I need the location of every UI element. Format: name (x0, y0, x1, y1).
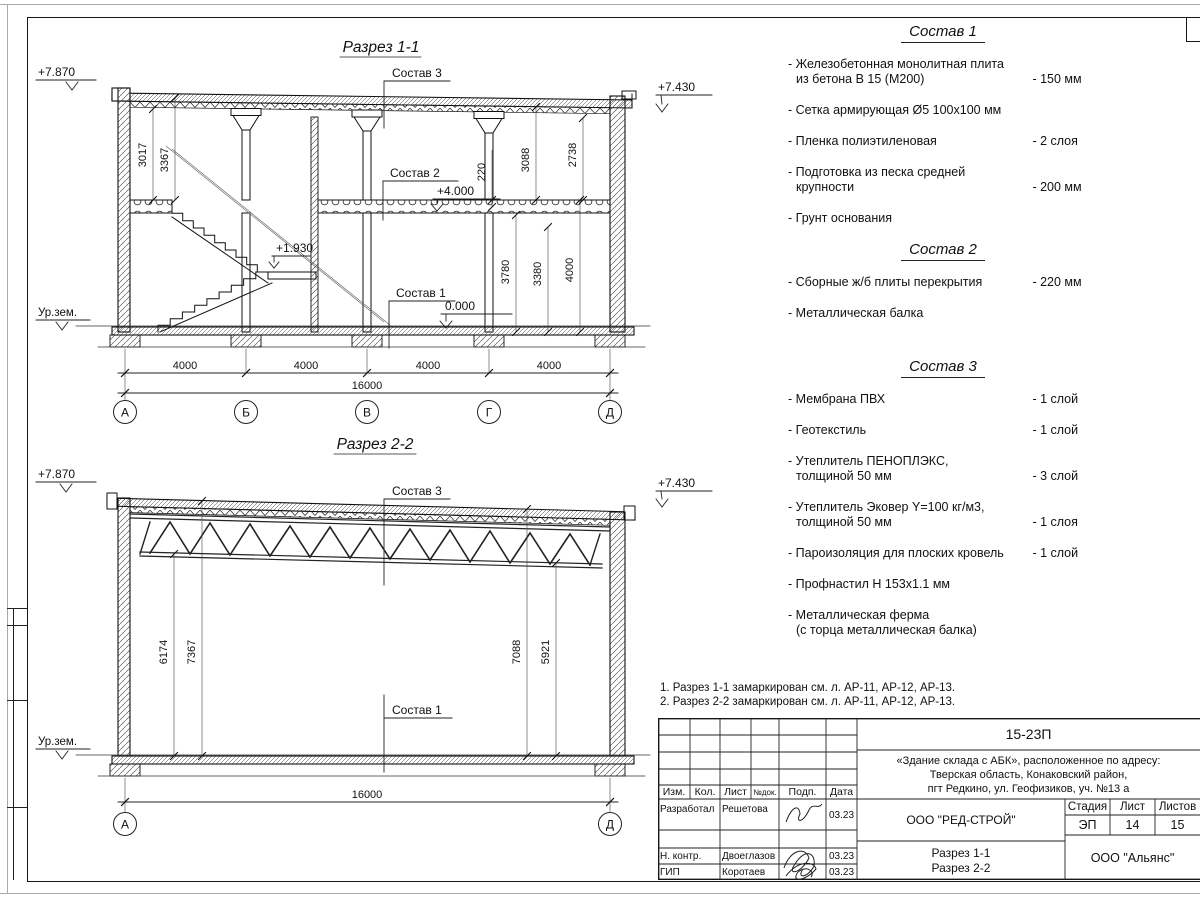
svg-text:7088: 7088 (511, 640, 523, 664)
lead-s3: Состав 3 (392, 66, 442, 80)
note-line: 2. Разрез 2-2 замаркирован см. л. АР-11,… (660, 695, 1090, 709)
drawing-sheet: { "sections": { "s1": { "title": "Разрез… (0, 0, 1200, 900)
tb-row-role: Н. контр. (660, 849, 720, 863)
tb-sheet-label: Лист (1110, 799, 1155, 815)
lead-s1: Состав 1 (396, 286, 446, 300)
material-item: - Мембрана ПВХ- 1 слой (788, 392, 1098, 407)
svg-text:+7.870: +7.870 (38, 467, 75, 481)
tb-col-ndok: №док. (751, 785, 779, 799)
material-item: - Железобетонная монолитная плита из бет… (788, 57, 1098, 87)
tb-row-role: ГИП (660, 865, 720, 879)
svg-text:5921: 5921 (540, 640, 552, 664)
svg-text:2738: 2738 (567, 143, 579, 167)
material-item: - Пароизоляция для плоских кровель- 1 сл… (788, 546, 1098, 561)
tb-row-name: Коротаев (722, 865, 778, 879)
svg-text:4000: 4000 (294, 360, 318, 372)
tb-col-podp: Подп. (779, 785, 826, 799)
sheet-edge-left (7, 4, 8, 893)
svg-text:Д: Д (606, 818, 614, 832)
tb-project: «Здание склада с АБК», расположенное по … (857, 750, 1200, 799)
svg-text:7367: 7367 (186, 640, 198, 664)
material-item: - Сетка армирующая Ø5 100х100 мм (788, 103, 1098, 118)
tb-row-name: Двоеглазов (722, 849, 778, 863)
sostav2-title: Состав 2 (788, 242, 1098, 257)
svg-text:4000: 4000 (173, 360, 197, 372)
tb-row-date: 03.23 (826, 808, 857, 822)
ground-label-s1: Ур.зем. (38, 307, 77, 319)
sections-drawing: Разрез 1-1 (25, 20, 740, 840)
tb-contractor: ООО "Альянс" (1065, 835, 1200, 880)
elev-4000: +4.000 (437, 184, 474, 198)
lead-s2: Состав 2 (390, 166, 440, 180)
bottom-dims-s1: 4000 4000 4000 4000 16000 (118, 349, 618, 400)
material-item: - Подготовка из песка средней крупности-… (788, 165, 1098, 195)
svg-text:3017: 3017 (137, 143, 149, 167)
tb-company: ООО "РЕД-СТРОЙ" (857, 799, 1065, 841)
tb-sheets-value: 15 (1155, 815, 1200, 835)
material-item: - Сборные ж/б плиты перекрытия- 220 мм (788, 275, 1098, 290)
corner-stamp-box (1186, 17, 1200, 42)
material-item: - Профнастил Н 153х1.1 мм (788, 577, 1098, 592)
material-item: - Утеплитель ПЕНОПЛЭКС, толщиной 50 мм- … (788, 454, 1098, 484)
ground-label-s2: Ур.зем. (38, 736, 77, 748)
staircase (158, 146, 390, 332)
tb-col-kol: Кол. (690, 785, 720, 799)
tb-row-date: 03.23 (826, 849, 857, 863)
tb-row-name: Решетова (722, 802, 778, 816)
svg-text:Г: Г (486, 406, 493, 420)
signature-icon (786, 863, 816, 879)
elev-7430: +7.430 (658, 80, 695, 94)
sostav1-title: Состав 1 (788, 24, 1098, 39)
svg-text:4000: 4000 (537, 360, 561, 372)
tb-col-list: Лист (720, 785, 751, 799)
sheet-edge-bottom (0, 893, 1200, 894)
svg-text:Б: Б (242, 406, 250, 420)
sheet-edge-top (0, 4, 1200, 5)
bottom-dims-s2: 16000 (118, 778, 618, 812)
section1-title: Разрез 1-1 (343, 39, 420, 56)
tb-stage-label: Стадия (1065, 799, 1110, 815)
svg-text:А: А (121, 818, 129, 832)
tb-row-role: Разработал (660, 802, 720, 816)
svg-text:4000: 4000 (564, 258, 576, 282)
material-item: - Грунт основания (788, 211, 1098, 226)
elev-7870: +7.870 (38, 65, 75, 79)
material-lists: Состав 1 - Железобетонная монолитная пли… (788, 24, 1098, 654)
leaders-s2: Состав 3 Состав 1 (384, 484, 452, 772)
section-2-2: Разрез 2-2 +7.870 +7 (36, 436, 712, 836)
foundation-pads-s2 (110, 764, 625, 776)
notes: 1. Разрез 1-1 замаркирован см. л. АР-11,… (660, 681, 1090, 709)
svg-text:4000: 4000 (416, 360, 440, 372)
title-block: 15-23П «Здание склада с АБК», расположен… (658, 718, 1200, 880)
vert-dims-s1: 3017 3367 220 3088 2738 3780 3380 4000 (137, 95, 587, 336)
material-item: - Геотекстиль- 1 слой (788, 423, 1098, 438)
signature-icon (786, 804, 822, 822)
svg-text:В: В (363, 406, 371, 420)
svg-text:220: 220 (476, 163, 488, 181)
note-line: 1. Разрез 1-1 замаркирован см. л. АР-11,… (660, 681, 1090, 695)
tb-sheets-label: Листов (1155, 799, 1200, 815)
svg-text:Состав 3: Состав 3 (392, 484, 442, 498)
tb-row-date: 03.23 (826, 865, 857, 879)
svg-text:3780: 3780 (500, 260, 512, 284)
tb-sheet-value: 14 (1110, 815, 1155, 835)
material-item: - Утеплитель Эковер Y=100 кг/м3, толщино… (788, 500, 1098, 530)
material-item: - Пленка полиэтиленовая- 2 слоя (788, 134, 1098, 149)
svg-text:6174: 6174 (158, 640, 170, 664)
svg-text:16000: 16000 (352, 380, 383, 392)
svg-text:3367: 3367 (159, 148, 171, 172)
tb-doc-title: Разрез 1-1 Разрез 2-2 (857, 841, 1065, 880)
svg-text:Состав 1: Состав 1 (392, 703, 442, 717)
svg-text:+7.430: +7.430 (658, 476, 695, 490)
material-item: - Металлическая балка (788, 306, 1098, 321)
axis-bubbles-s1: А Б В Г Д (114, 401, 622, 424)
svg-text:Д: Д (606, 406, 614, 420)
tb-col-data: Дата (826, 785, 857, 799)
svg-text:16000: 16000 (352, 789, 383, 801)
sostav3-title: Состав 3 (788, 359, 1098, 374)
tb-doc-code: 15-23П (857, 718, 1200, 750)
tb-stage-value: ЭП (1065, 815, 1110, 835)
section2-title: Разрез 2-2 (337, 436, 414, 453)
material-item: - Металлическая ферма (с торца металличе… (788, 608, 1098, 638)
section-1-1: Разрез 1-1 (36, 39, 712, 424)
axis-bubbles-s2: А Д (114, 813, 622, 836)
signature-scribbles (784, 804, 822, 879)
tb-col-izm: Изм. (658, 785, 690, 799)
foundation-pads (110, 335, 625, 347)
svg-text:3380: 3380 (532, 262, 544, 286)
svg-text:А: А (121, 406, 129, 420)
elev-1930: +1.930 (276, 241, 313, 255)
svg-text:3088: 3088 (520, 148, 532, 172)
